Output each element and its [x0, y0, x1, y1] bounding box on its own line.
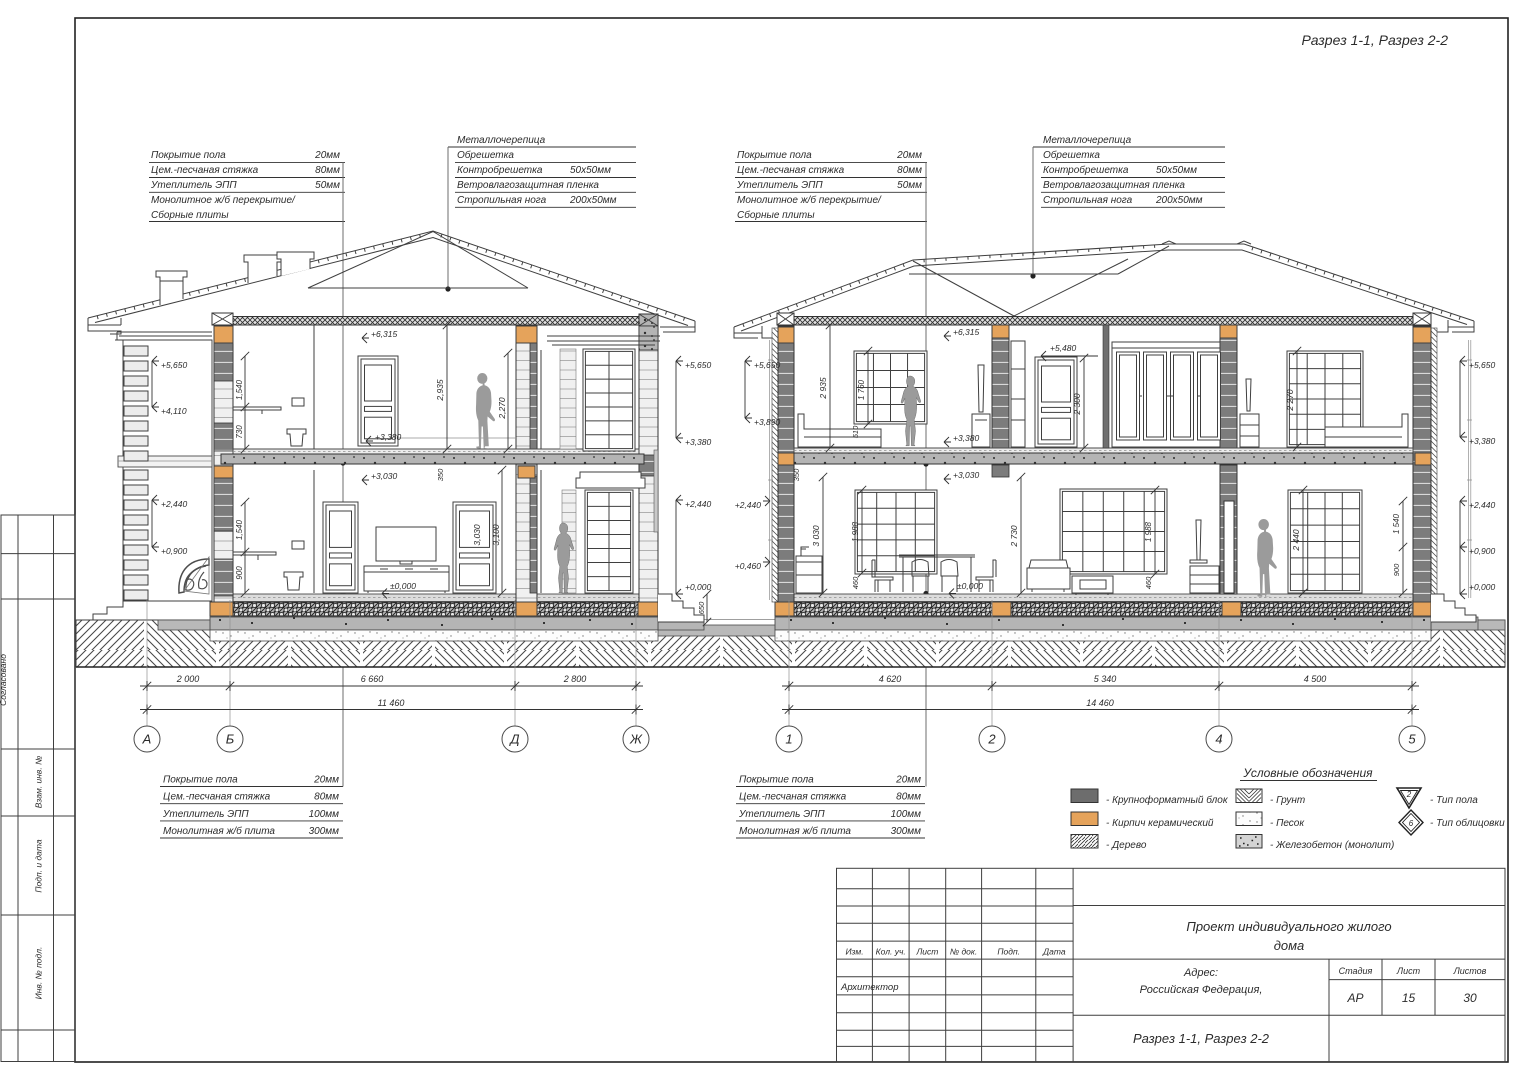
svg-text:Кол. уч.: Кол. уч.: [876, 947, 906, 957]
svg-text:20мм: 20мм: [895, 775, 921, 786]
svg-text:Покрытие пола: Покрытие пола: [163, 775, 238, 786]
svg-text:1,540: 1,540: [235, 379, 244, 400]
svg-text:3,100: 3,100: [491, 524, 501, 546]
svg-text:Стадия: Стадия: [1339, 966, 1373, 976]
svg-text:+0,000: +0,000: [1469, 582, 1496, 592]
svg-text:2: 2: [1406, 790, 1412, 799]
svg-text:+3,030: +3,030: [371, 471, 398, 481]
svg-text:Монолитная ж/б плита: Монолитная ж/б плита: [739, 825, 851, 837]
svg-text:Стропильная нога: Стропильная нога: [1043, 195, 1133, 206]
svg-text:1 988: 1 988: [1144, 521, 1153, 542]
svg-text:1: 1: [785, 732, 792, 747]
svg-text:+0,900: +0,900: [1469, 546, 1496, 556]
svg-text:№ док.: № док.: [950, 947, 977, 957]
svg-text:Утеплитель ЭПП: Утеплитель ЭПП: [162, 809, 249, 820]
svg-text:50мм: 50мм: [315, 180, 340, 191]
svg-text:+5,650: +5,650: [754, 360, 781, 370]
svg-text:+4,110: +4,110: [161, 406, 187, 416]
svg-text:3,030: 3,030: [472, 524, 482, 546]
svg-text:+5,650: +5,650: [685, 360, 712, 370]
svg-text:3 030: 3 030: [811, 525, 821, 547]
svg-text:+5,650: +5,650: [1469, 360, 1496, 370]
svg-text:Утеплитель ЭПП: Утеплитель ЭПП: [150, 180, 237, 191]
svg-text:+3,380: +3,380: [375, 432, 402, 442]
svg-text:Д: Д: [508, 732, 519, 747]
svg-text:+5,650: +5,650: [161, 360, 188, 370]
svg-text:+6,315: +6,315: [953, 327, 980, 337]
svg-text:6: 6: [1409, 819, 1414, 828]
svg-text:20мм: 20мм: [313, 775, 339, 786]
svg-text:Взам. инв. №: Взам. инв. №: [34, 756, 44, 809]
svg-text:+3,380: +3,380: [685, 437, 712, 447]
svg-text:Архитектор: Архитектор: [840, 982, 899, 993]
svg-text:900: 900: [1392, 563, 1401, 576]
svg-text:Лист: Лист: [915, 947, 938, 957]
svg-text:- Кирпич керамический: - Кирпич керамический: [1106, 818, 1214, 829]
svg-text:Инв. № подл.: Инв. № подл.: [34, 947, 44, 1000]
svg-text:Металлочерепица: Металлочерепица: [1043, 135, 1132, 146]
svg-text:+0,000: +0,000: [685, 582, 712, 592]
svg-text:2,935: 2,935: [435, 379, 445, 402]
svg-text:Монолитное ж/б перекрытие/: Монолитное ж/б перекрытие/: [737, 194, 882, 206]
svg-text:- Тип облицовки: - Тип облицовки: [1430, 817, 1505, 829]
svg-text:+3,890: +3,890: [754, 417, 781, 427]
svg-text:15: 15: [1402, 991, 1416, 1005]
svg-text:300мм: 300мм: [891, 826, 922, 837]
svg-text:Монолитное ж/б перекрытие/: Монолитное ж/б перекрытие/: [151, 194, 296, 206]
svg-text:Стропильная нога: Стропильная нога: [457, 195, 547, 206]
svg-text:- Железобетон (монолит): - Железобетон (монолит): [1270, 839, 1394, 851]
svg-text:+3,380: +3,380: [1469, 436, 1496, 446]
svg-text:80мм: 80мм: [314, 792, 339, 803]
svg-text:4: 4: [1215, 732, 1222, 747]
svg-text:20мм: 20мм: [896, 150, 922, 161]
svg-text:Сборные плиты: Сборные плиты: [737, 209, 815, 221]
svg-text:Металлочерепица: Металлочерепица: [457, 135, 546, 146]
svg-text:80мм: 80мм: [897, 165, 922, 176]
svg-text:1,540: 1,540: [235, 519, 244, 540]
svg-text:Обрешетка: Обрешетка: [457, 149, 514, 161]
svg-text:Контробрешетка: Контробрешетка: [1043, 164, 1129, 176]
svg-text:Согласовано: Согласовано: [0, 654, 8, 706]
svg-text:Ветровлагозащитная пленка: Ветровлагозащитная пленка: [1043, 180, 1185, 191]
svg-text:Адрес:: Адрес:: [1183, 967, 1218, 979]
svg-text:350: 350: [792, 468, 801, 481]
svg-text:+6,315: +6,315: [371, 329, 398, 339]
svg-text:- Тип пола: - Тип пола: [1430, 795, 1478, 806]
svg-text:200х50мм: 200х50мм: [1155, 195, 1203, 206]
svg-text:- Грунт: - Грунт: [1270, 795, 1305, 806]
svg-text:2 440: 2 440: [1291, 529, 1301, 552]
svg-text:Подп.: Подп.: [997, 947, 1020, 957]
svg-text:2 300: 2 300: [1072, 393, 1082, 416]
svg-text:Листов: Листов: [1453, 966, 1487, 976]
svg-text:1 760: 1 760: [857, 379, 866, 400]
svg-text:Покрытие пола: Покрытие пола: [737, 150, 812, 161]
svg-text:Проект индивидуального жилого: Проект индивидуального жилого: [1186, 919, 1391, 934]
svg-text:Дата: Дата: [1042, 947, 1066, 957]
svg-text:50мм: 50мм: [897, 180, 922, 191]
svg-text:1 988: 1 988: [851, 521, 860, 542]
svg-text:650: 650: [697, 601, 706, 614]
svg-text:2,270: 2,270: [497, 397, 507, 420]
svg-text:1 540: 1 540: [1392, 513, 1401, 534]
svg-text:300мм: 300мм: [309, 826, 340, 837]
svg-text:- Крупноформатный блок: - Крупноформатный блок: [1106, 794, 1229, 806]
svg-text:2 270: 2 270: [1285, 389, 1295, 412]
svg-text:+5,480: +5,480: [1050, 343, 1077, 353]
svg-text:4 500: 4 500: [1304, 674, 1327, 684]
svg-text:Покрытие пола: Покрытие пола: [739, 775, 814, 786]
svg-text:6 660: 6 660: [361, 674, 384, 684]
svg-text:Условные обозначения: Условные обозначения: [1242, 766, 1373, 780]
svg-text:Разрез 1-1, Разрез 2-2: Разрез 1-1, Разрез 2-2: [1133, 1031, 1270, 1046]
svg-text:50х50мм: 50х50мм: [1156, 165, 1197, 176]
svg-text:Подп. и дата: Подп. и дата: [34, 839, 44, 892]
svg-text:20мм: 20мм: [314, 150, 340, 161]
svg-text:- Дерево: - Дерево: [1106, 840, 1147, 851]
svg-text:Ж: Ж: [629, 732, 643, 747]
svg-text:Лист: Лист: [1396, 966, 1421, 976]
svg-text:2 000: 2 000: [176, 674, 200, 684]
svg-text:2 935: 2 935: [818, 377, 828, 400]
svg-text:200х50мм: 200х50мм: [569, 195, 617, 206]
svg-text:Покрытие пола: Покрытие пола: [151, 150, 226, 161]
svg-text:Контробрешетка: Контробрешетка: [457, 164, 543, 176]
svg-text:50х50мм: 50х50мм: [570, 165, 611, 176]
svg-text:Изм.: Изм.: [845, 947, 863, 957]
svg-text:+2,440: +2,440: [1469, 500, 1496, 510]
svg-text:+2,440: +2,440: [161, 499, 188, 509]
svg-text:2 800: 2 800: [563, 674, 587, 684]
svg-text:Утеплитель ЭПП: Утеплитель ЭПП: [736, 180, 823, 191]
svg-text:Цем.-песчаная стяжка: Цем.-песчаная стяжка: [737, 165, 845, 176]
svg-text:Утеплитель ЭПП: Утеплитель ЭПП: [738, 809, 825, 820]
svg-text:Монолитная ж/б плита: Монолитная ж/б плита: [163, 825, 275, 837]
svg-text:±0,000: ±0,000: [957, 581, 983, 591]
svg-text:350: 350: [436, 468, 445, 481]
svg-text:дома: дома: [1274, 938, 1305, 953]
svg-text:80мм: 80мм: [315, 165, 340, 176]
svg-text:460: 460: [1144, 576, 1153, 589]
svg-text:Российская Федерация,: Российская Федерация,: [1140, 984, 1263, 996]
svg-text:2: 2: [987, 732, 996, 747]
svg-text:±0,000: ±0,000: [390, 581, 416, 591]
svg-text:А: А: [142, 732, 152, 747]
svg-text:80мм: 80мм: [896, 792, 921, 803]
svg-text:+2,440: +2,440: [685, 499, 712, 509]
svg-text:+0,460: +0,460: [735, 561, 762, 571]
svg-text:11 460: 11 460: [378, 698, 405, 708]
svg-text:+3,030: +3,030: [953, 470, 980, 480]
svg-text:Обрешетка: Обрешетка: [1043, 149, 1100, 161]
svg-text:30: 30: [1463, 991, 1477, 1005]
svg-text:4 620: 4 620: [879, 674, 902, 684]
svg-text:Цем.-песчаная стяжка: Цем.-песчаная стяжка: [163, 792, 271, 803]
svg-text:Ветровлагозащитная пленка: Ветровлагозащитная пленка: [457, 180, 599, 191]
svg-text:5: 5: [1408, 732, 1416, 747]
svg-text:Разрез 1-1, Разрез 2-2: Разрез 1-1, Разрез 2-2: [1301, 32, 1448, 48]
svg-text:510: 510: [851, 425, 860, 438]
svg-text:АР: АР: [1346, 991, 1363, 1005]
svg-text:5 340: 5 340: [1094, 674, 1117, 684]
svg-text:+0,900: +0,900: [161, 546, 188, 556]
svg-text:Сборные плиты: Сборные плиты: [151, 209, 229, 221]
svg-text:730: 730: [235, 425, 244, 439]
svg-text:2 730: 2 730: [1009, 525, 1019, 548]
svg-text:+3,380: +3,380: [953, 433, 980, 443]
svg-text:Цем.-песчаная стяжка: Цем.-песчаная стяжка: [151, 165, 259, 176]
svg-text:Цем.-песчаная стяжка: Цем.-песчаная стяжка: [739, 792, 847, 803]
svg-text:100мм: 100мм: [891, 809, 922, 820]
svg-text:- Песок: - Песок: [1270, 818, 1305, 829]
svg-text:Б: Б: [226, 732, 235, 747]
svg-text:+2,440: +2,440: [735, 500, 762, 510]
svg-text:460: 460: [851, 576, 860, 589]
svg-text:14 460: 14 460: [1086, 698, 1114, 708]
svg-text:900: 900: [235, 566, 244, 580]
svg-text:100мм: 100мм: [309, 809, 340, 820]
